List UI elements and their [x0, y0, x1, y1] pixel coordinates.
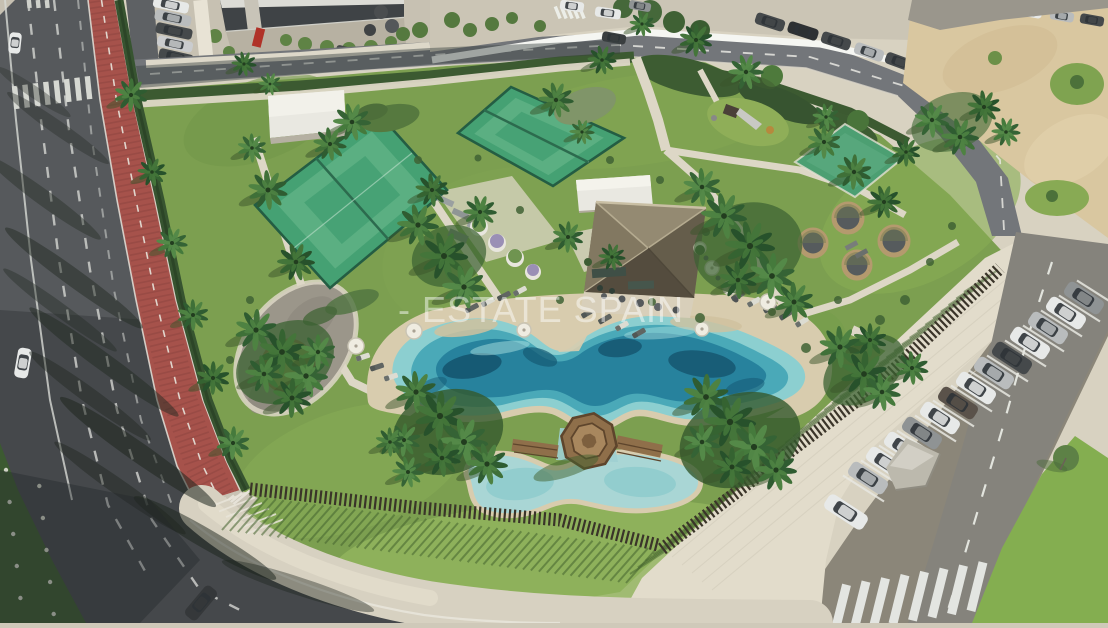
svg-text:- ESTATE SPAIN: - ESTATE SPAIN [398, 289, 684, 330]
